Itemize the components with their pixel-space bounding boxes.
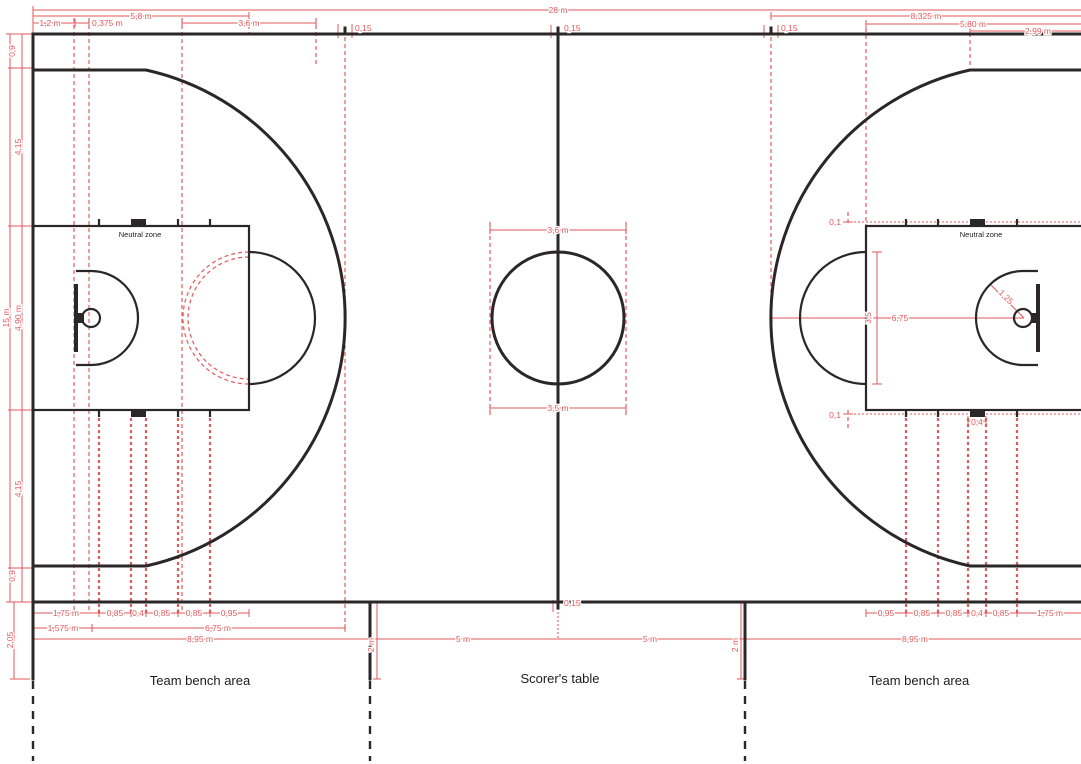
bench-boundary-lines-dashed [33,681,745,761]
dim-ft-circle-top: 3,6 m [238,18,259,28]
dim-br-5: 0,85 [993,608,1010,618]
dim-bl-2: 0,85 [107,608,124,618]
dim-left-lower: 4,15 [13,480,23,497]
dim-bench-line-right: 2 m [730,638,740,652]
dim-scorer-left: 5 m [456,634,470,644]
dim-three-point-straight: 2,99 m [1025,26,1051,36]
court-markings [33,28,1081,761]
dim-three-point-radius: 6,75 [892,313,909,323]
dim-hash-length-bottom: 0,1 [829,410,841,420]
dim-sideline-margin-top: 0,9 [7,45,17,57]
dim-bl-5: 0,85 [186,608,203,618]
key-left [33,226,249,410]
dim-total-right: 8,95 m [902,634,928,644]
dim-bl-4: 0,85 [154,608,171,618]
dim-throwin-distance: 8,325 m [911,11,942,21]
dim-center-tick-top: 0,15 [564,23,581,33]
dim-block-width: 0,4 [971,417,983,427]
dimension-guides-dashed [74,18,970,632]
free-throw-semicircle-left [249,252,315,384]
dim-backboard-distance: 1,2 m [39,18,60,28]
dim-br-2: 0,85 [914,608,931,618]
dim-center-circle-outer: 3,6 m [547,225,568,235]
dimension-lines [10,10,1081,679]
dim-ring-offset: 0,375 m [92,18,123,28]
dim-ft-line-right: 5,80 m [960,19,986,29]
team-bench-area-right-label: Team bench area [869,673,970,688]
dim-left-upper: 4,15 [13,138,23,155]
dim-three-point-radius-left: 6,75 m [205,623,231,633]
neutral-zone-label-right: Neutral zone [960,230,1003,239]
dim-key-width: 4,90 m [13,305,23,331]
dim-bench-depth: 2,05 [5,631,15,648]
lane-block-left-bottom [131,410,146,417]
dim-bench-line-left: 2 m [366,638,376,652]
basketball-court-plan: 28 m 5,8 m 8,325 m 1,2 m 0,375 m 3,6 m 5… [0,0,1081,764]
dim-sideline-margin-bottom: 0,9 [7,570,17,582]
dim-bl-1: 1,75 m [53,608,79,618]
dim-br-6: 1,75 m [1037,608,1063,618]
dim-ft-circle-right: 3,5 [863,312,873,324]
lane-block-right-bottom [970,410,985,417]
dim-center-tick-bottom: 0,15 [564,598,581,608]
dim-br-4: 0,4 [971,608,983,618]
dim-center-circle-inner: 3,5 m [547,403,568,413]
dim-throwin-tick-right: 0,15 [781,23,798,33]
dim-overall-length: 28 m [549,5,568,15]
scorers-table-label: Scorer's table [520,671,599,686]
lane-block-right-top [970,219,985,226]
free-throw-semicircle-dashed-inner [188,257,249,379]
dim-no-charge-radius: 1,25 [997,287,1016,306]
dim-total-left: 8,95 m [187,634,213,644]
dimension-guides-dotted [558,222,1081,639]
dim-basket-distance: 1,575 m [48,623,79,633]
no-charge-semicircle-left [76,271,138,365]
dim-br-3: 0,85 [946,608,963,618]
free-throw-semicircle-dashed-outer [183,252,249,384]
dim-br-1: 0,95 [878,608,895,618]
dim-bl-6: 0,95 [221,608,238,618]
dim-scorer-right: 5 m [643,634,657,644]
lane-block-left-top [131,219,146,226]
dim-throwin-tick-left: 0,15 [355,23,372,33]
neutral-zone-label-left: Neutral zone [119,230,162,239]
dim-ft-line-left: 5,8 m [130,11,151,21]
court-diagram: 28 m 5,8 m 8,325 m 1,2 m 0,375 m 3,6 m 5… [0,0,1081,764]
dim-bl-3: 0,4 [132,608,144,618]
basket-ring-left [82,309,100,327]
dim-hash-length-top: 0,1 [829,217,841,227]
dim-court-width: 15 m [1,309,11,328]
team-bench-area-left-label: Team bench area [150,673,251,688]
